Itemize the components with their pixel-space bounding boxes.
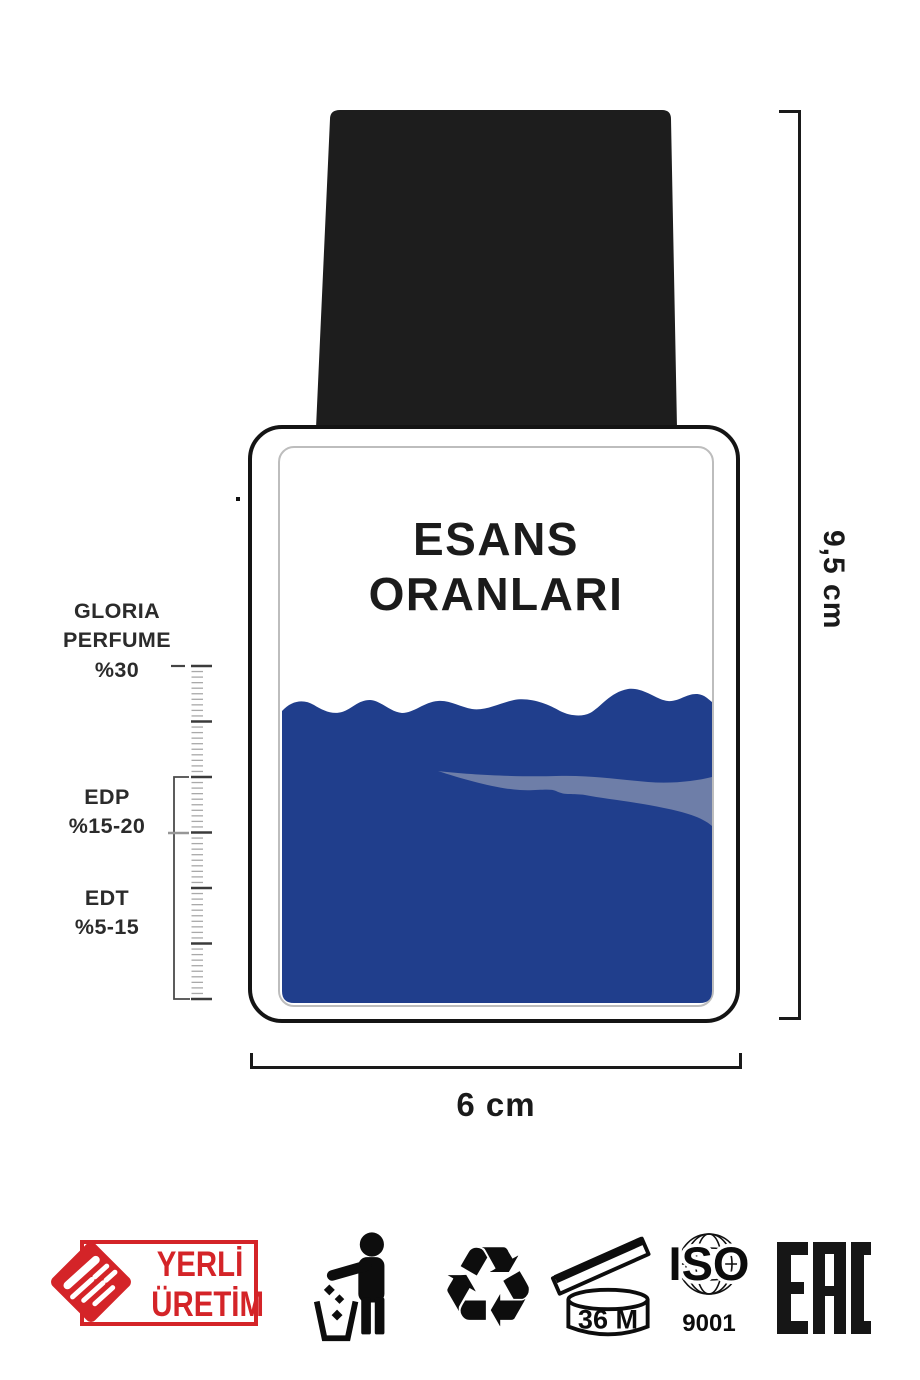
height-dimension-cap-bottom: [779, 1017, 801, 1020]
badge-line1: YERLİ: [151, 1245, 248, 1285]
height-dimension-cap-top: [779, 110, 801, 113]
measurement-ruler: [160, 655, 230, 1015]
speck-dot: [236, 497, 240, 501]
width-dimension-label: 6 cm: [278, 1086, 714, 1124]
gloria-line2: PERFUME: [36, 626, 198, 655]
pao-duration-label: 36 M: [578, 1305, 638, 1335]
bottle-title-line2: ORANLARI: [278, 567, 714, 622]
iso-code: 9001: [682, 1310, 735, 1336]
height-dimension-label: 9,5 cm: [804, 518, 850, 642]
ruler-ticks: [191, 666, 212, 999]
iso-title: ISO: [669, 1237, 750, 1290]
badge-line2: ÜRETİM: [151, 1285, 248, 1325]
bottle-cap-shape: [316, 110, 677, 428]
bottle-title: ESANS ORANLARI: [278, 512, 714, 622]
bottle-cap: [306, 106, 686, 430]
recycle-icon: ♻: [428, 1224, 548, 1352]
eac-logo: EAC: [777, 1242, 871, 1334]
iso-9001-logo: ISO 9001: [661, 1228, 757, 1336]
edp-edt-bracket: [174, 777, 190, 999]
height-dimension-line: [798, 110, 801, 1020]
badge-text: YERLİ ÜRETİM: [151, 1245, 248, 1319]
litter-disposal-icon: [310, 1230, 426, 1346]
iso-globe-icon: ISO 9001: [661, 1228, 757, 1336]
handshake-icon: [50, 1233, 136, 1333]
liquid-wave-shape: [282, 689, 712, 1003]
width-dimension-line: [250, 1066, 742, 1069]
bottle-title-line1: ESANS: [278, 512, 714, 567]
gloria-line1: GLORIA: [36, 597, 198, 626]
width-dimension-cap-left: [250, 1053, 253, 1069]
perfume-essence-infographic: ESANS ORANLARI GLORIA PERFUME %30 EDP %1…: [0, 0, 920, 1380]
width-dimension-cap-right: [739, 1053, 742, 1069]
yerli-uretim-badge: YERLİ ÜRETİM: [50, 1233, 265, 1333]
period-after-opening-icon: 36 M: [545, 1228, 671, 1344]
